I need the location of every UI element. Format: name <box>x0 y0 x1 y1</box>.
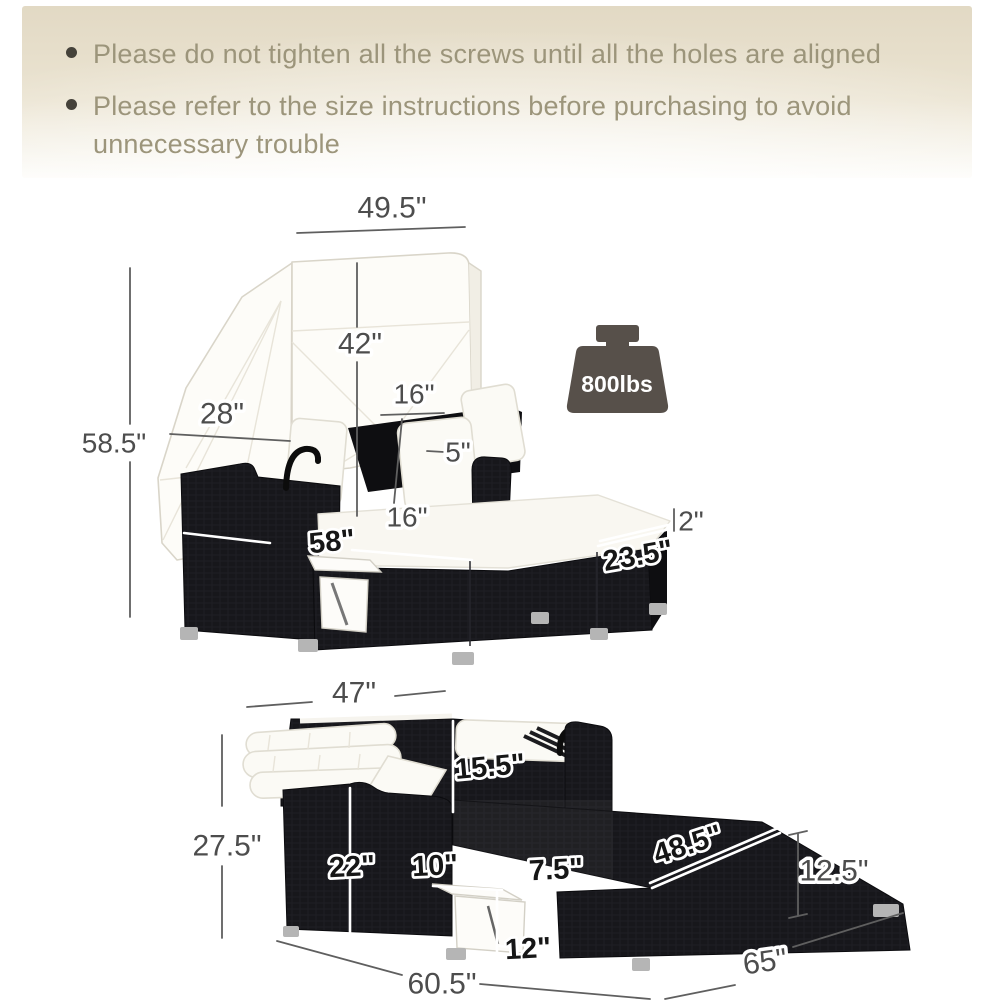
weight-capacity-badge: 800lbs <box>567 325 668 413</box>
dim-bed-length-label: 58" <box>307 524 356 561</box>
diagram-top-art: 800lbs 49.5" 42" 16" 28" 58.5" 5" 16" 2"… <box>82 192 704 666</box>
dim-pillow-width-label: 16" <box>393 379 434 410</box>
dim-platform-step-label: 7.5" <box>528 853 584 888</box>
dim-table-width-label: 10" <box>411 849 459 883</box>
diagram-bottom-art: 47" 27.5" 15.5" 22" 10" 7.5" 12" 48.5" 1… <box>192 677 910 1000</box>
dim-cushion-thickness-label: 2" <box>678 506 704 537</box>
dim-canopy-width-label: 49.5" <box>357 192 426 225</box>
dim-pillow-thickness-label: 5" <box>445 437 471 468</box>
dim-canopy-height-label: 42" <box>338 328 382 361</box>
dim-seat-height-label: 22" <box>328 850 376 884</box>
dim-backrest-seat-width-label: 16" <box>386 502 427 533</box>
dim-backrest-height-label: 15.5" <box>454 748 527 786</box>
dim-base-height-label: 12.5" <box>799 855 868 888</box>
weight-capacity-label: 800lbs <box>581 371 653 397</box>
dim-top-width-label: 47" <box>332 677 376 710</box>
diagram-canvas: 800lbs 49.5" 42" 16" 28" 58.5" 5" 16" 2"… <box>0 0 1000 1000</box>
dim-table-drop-label: 12" <box>504 932 552 966</box>
dim-base-depth-label: 65" <box>741 943 789 982</box>
dim-overall-height-label: 27.5" <box>192 830 261 863</box>
dim-overall-height-label: 58.5" <box>82 428 146 459</box>
tray-opening <box>320 577 368 632</box>
dim-base-length-label: 60.5" <box>407 968 476 1000</box>
product-dimensions-infographic: Please do not tighten all the screws unt… <box>0 0 1000 1000</box>
dim-canopy-depth-label: 28" <box>200 398 244 431</box>
